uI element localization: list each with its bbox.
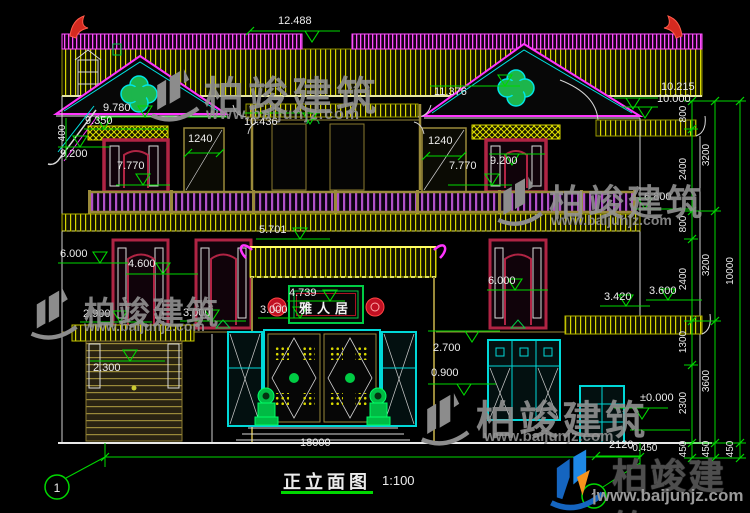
garage [72, 325, 194, 441]
level-label-7770-left: 7.770 [117, 161, 145, 172]
door-far-right [580, 386, 624, 443]
level-label-7770-right: 7.770 [449, 161, 477, 172]
balcony-railing [88, 190, 636, 214]
level-label-6800: 6.800 [644, 192, 672, 203]
level-label-2900: 2.900 [83, 309, 111, 320]
level-label-3600: 3.600 [649, 286, 677, 297]
door-knocker-icon [289, 373, 299, 383]
dim-label-400: 400 [58, 118, 68, 148]
cad-linework [0, 0, 750, 513]
dim-label-1240-left: 1240 [188, 134, 212, 145]
dim-label-1240-right: 1240 [428, 136, 452, 147]
lattice-band-right [472, 125, 560, 139]
level-label-9200-left: 9.200 [60, 149, 88, 160]
level-label-2700: 2.700 [433, 343, 461, 354]
level-label-10215: 10.215 [661, 82, 695, 93]
level-label-ridge: 12.488 [278, 16, 312, 27]
level-label-11376: 11.376 [434, 87, 467, 98]
level-label-3000-center: 3.000 [260, 305, 288, 316]
level-label-5701: 5.701 [259, 225, 287, 236]
dim-chain-inner-4: 1300 [679, 327, 689, 357]
level-label-6000-left: 6.000 [60, 249, 88, 260]
dim-chain-mid-1: 3200 [702, 250, 712, 280]
level-label-3420: 3.420 [604, 292, 632, 303]
right-dimension-chain [684, 97, 746, 462]
floor1-eave [62, 214, 640, 231]
dim-chain-inner-2: 800 [679, 209, 689, 239]
dim-chain-inner-5: 2300 [679, 388, 689, 418]
entrance-doors [264, 330, 380, 426]
dim-chain-inner-3: 2400 [679, 264, 689, 294]
axis-label-right: 1 [587, 490, 601, 504]
entrance-canopy [241, 245, 445, 277]
level-label-3000-garage: 3.000 [183, 308, 211, 319]
dim-chain-mid-0: 3200 [702, 140, 712, 170]
drawing-scale: 1:100 [382, 473, 415, 488]
dim-chain-inner-6: 450 [679, 434, 689, 464]
dim-chain-inner-1: 2400 [679, 154, 689, 184]
dim-chain-outer-0: 10000 [726, 256, 736, 286]
level-label-9780: 9.780 [103, 103, 131, 114]
lattice-band-left [88, 126, 168, 140]
plaque-text: 雅人居 [291, 298, 361, 317]
level-label-4600: 4.600 [128, 259, 156, 270]
level-label-0900: 0.900 [431, 368, 459, 379]
dim-chain-mid-3: 450 [702, 434, 712, 464]
dim-chain-outer-1: 450 [726, 434, 736, 464]
level-label-zero: ±0.000 [640, 393, 674, 404]
window-ground-right [488, 340, 560, 420]
elevation-drawing-canvas: 12.488 9.780 9.350 9.200 7.770 10.436 11… [0, 0, 750, 513]
dim-label-18000: 18000 [300, 438, 331, 449]
level-label-9200-right: 9.200 [490, 156, 518, 167]
window-fl1-left-a [113, 240, 168, 328]
level-label-6000-right: 6.000 [488, 276, 516, 287]
entrance-sidelight-left [228, 332, 262, 426]
level-label-2300: 2.300 [93, 363, 121, 374]
level-label-9350: 9.350 [85, 116, 113, 127]
door-knocker-icon [345, 373, 355, 383]
rosette-right-icon [366, 298, 384, 316]
bottom-dimension-18000 [101, 443, 644, 467]
dim-chain-mid-2: 3600 [702, 366, 712, 396]
dim-chain-inner-0: 800 [679, 99, 689, 129]
dim-label-2120: 2120 [609, 440, 633, 451]
level-label-10436: 10.436 [244, 117, 278, 128]
axis-label-left: 1 [50, 481, 64, 495]
title-underline [281, 491, 373, 494]
